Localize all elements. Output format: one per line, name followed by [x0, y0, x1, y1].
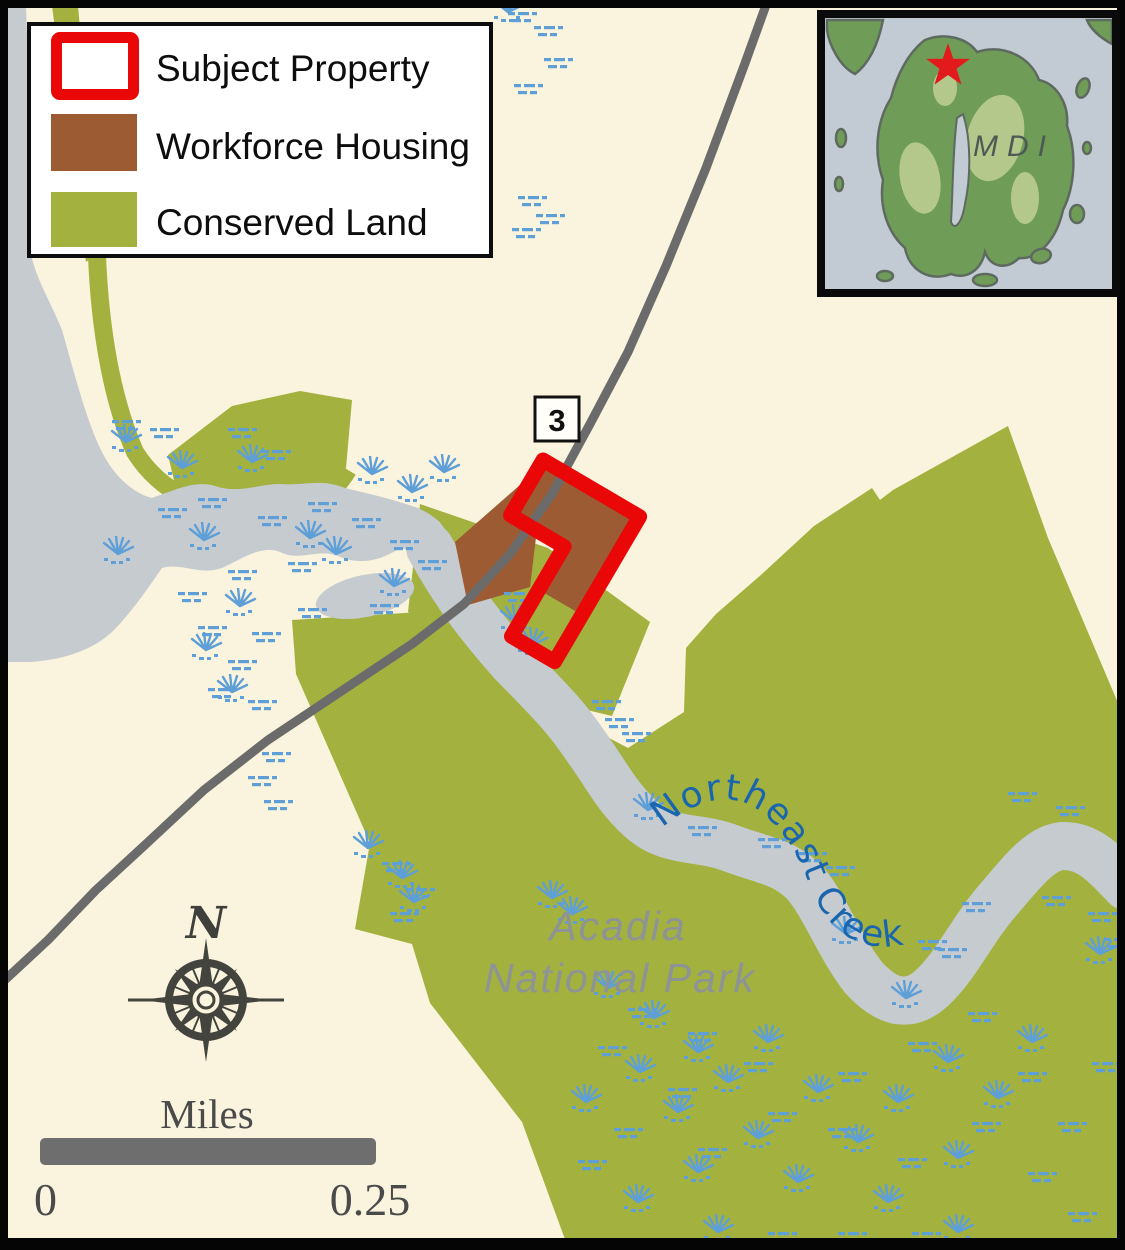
legend-label-workforce-housing: Workforce Housing: [156, 126, 470, 168]
scale-bar-start: 0: [34, 1174, 57, 1225]
inset-mdi-label: MDI: [973, 130, 1055, 163]
route-3-shield: 3: [535, 397, 579, 441]
scale-bar-end: 0.25: [330, 1174, 411, 1225]
legend: Subject Property Workforce Housing Conse…: [27, 22, 493, 258]
route-3-shield-label: 3: [548, 403, 565, 438]
scale-bar-rect: [40, 1138, 376, 1165]
legend-swatch-conserved-land: [51, 192, 137, 247]
inset-locator-map: MDI: [817, 10, 1120, 297]
legend-label-conserved-land: Conserved Land: [156, 202, 428, 244]
compass-north-label: N: [184, 898, 228, 949]
acadia-park-label-line1: Acadia: [546, 903, 686, 949]
legend-swatch-subject-property: [51, 32, 139, 100]
inset-canvas: MDI: [825, 18, 1112, 289]
scale-bar-title: Miles: [160, 1091, 253, 1137]
legend-swatch-workforce-housing: [51, 114, 137, 171]
acadia-park-label-line2: National Park: [484, 955, 757, 1001]
legend-label-subject-property: Subject Property: [156, 48, 430, 90]
map-figure: 3 Northeast Creek Acadia National Park N…: [0, 0, 1125, 1250]
